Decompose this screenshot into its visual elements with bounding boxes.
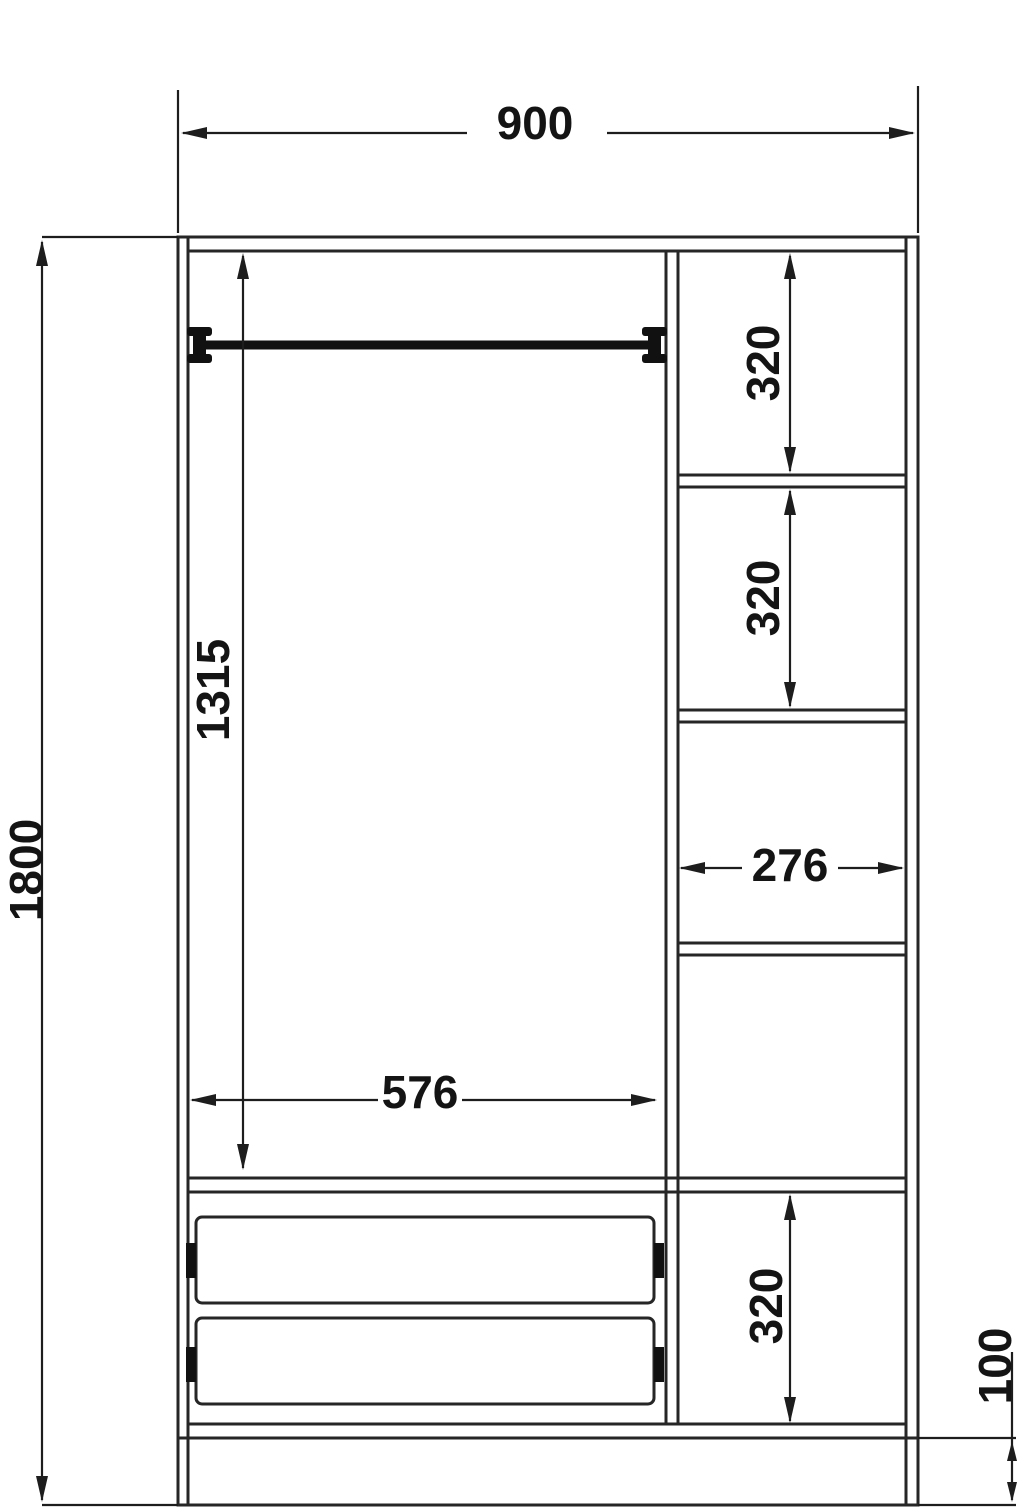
dim-plinth-arrow-top <box>1007 1441 1017 1461</box>
dim-label-shelf1: 320 <box>737 325 789 402</box>
dim-label-overall-width: 900 <box>497 97 574 149</box>
dim-label-hanging-width: 576 <box>382 1066 459 1118</box>
shelf-column <box>188 475 906 1192</box>
drawer-lower-left-slide <box>186 1347 196 1382</box>
dim-label-col-width: 276 <box>752 839 829 891</box>
dim-hanging-width-arrow-right <box>631 1094 657 1106</box>
dim-overall-width-arrow-left <box>181 127 207 139</box>
dim-label-hanging-height: 1315 <box>187 639 239 741</box>
dim-plinth: 100 <box>918 1328 1021 1505</box>
drawing-canvas: 900 1800 1315 320 <box>0 0 1023 1512</box>
drawer-section <box>186 1217 664 1404</box>
dim-label-plinth: 100 <box>969 1328 1021 1405</box>
dim-hanging-height-arrow-bottom <box>237 1144 249 1170</box>
dim-overall-height-arrow-bottom <box>36 1476 48 1502</box>
drawer-lower <box>196 1318 654 1404</box>
dim-hanging-height-arrow-top <box>237 253 249 279</box>
dim-shelf1-arrow-top <box>784 253 796 279</box>
dim-hanging-height: 1315 <box>187 253 249 1170</box>
dim-shelf2-arrow-top <box>784 489 796 515</box>
dim-shelf2-arrow-bottom <box>784 682 796 708</box>
dim-plinth-arrow-bottom <box>1007 1482 1017 1502</box>
dim-hanging-width-arrow-left <box>190 1094 216 1106</box>
dim-hanging-width: 576 <box>190 1066 657 1118</box>
dim-overall-width: 900 <box>178 86 918 233</box>
dim-overall-width-arrow-right <box>889 127 915 139</box>
dim-shelf-compartment-1: 320 <box>737 253 796 473</box>
rod-bracket-right-bottom-flange <box>642 354 667 363</box>
drawer-upper-left-slide <box>186 1243 196 1278</box>
dim-shelf-compartment-2: 320 <box>737 489 796 708</box>
drawer-upper <box>196 1217 654 1303</box>
dim-label-overall-height: 1800 <box>0 819 52 921</box>
dim-bottom-comp-arrow-bottom <box>784 1397 796 1423</box>
dim-bottom-compartment: 320 <box>740 1194 796 1423</box>
dim-shelf1-arrow-bottom <box>784 447 796 473</box>
dim-bottom-comp-arrow-top <box>784 1194 796 1220</box>
dim-label-shelf2: 320 <box>737 560 789 637</box>
wardrobe-dimension-drawing: 900 1800 1315 320 <box>0 0 1023 1512</box>
hanging-rod-assembly <box>187 327 667 363</box>
dim-col-width-arrow-left <box>679 862 705 874</box>
dim-shelf-column-width: 276 <box>679 839 904 891</box>
dim-overall-height-arrow-top <box>36 240 48 266</box>
rod-bracket-left-bottom-flange <box>187 354 212 363</box>
dim-col-width-arrow-right <box>878 862 904 874</box>
drawer-upper-right-slide <box>654 1243 664 1278</box>
dim-overall-height: 1800 <box>0 237 178 1505</box>
dim-label-bottom-comp: 320 <box>740 1268 792 1345</box>
drawer-lower-right-slide <box>654 1347 664 1382</box>
